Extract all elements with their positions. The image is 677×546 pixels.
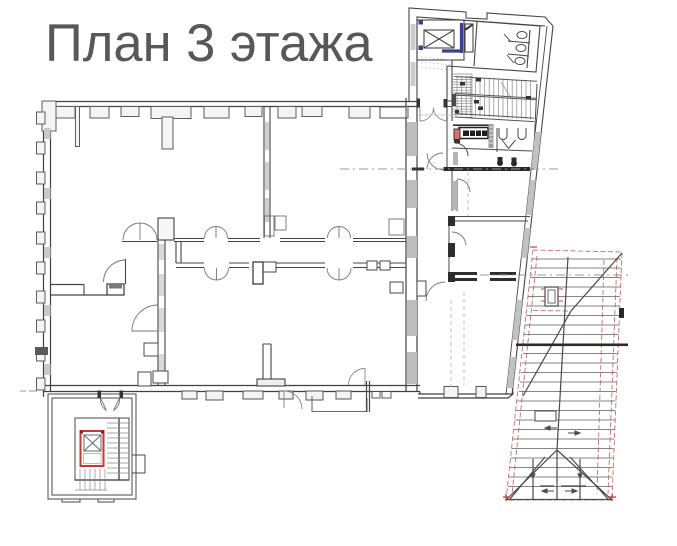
svg-text:План 3 этажа: План 3 этажа	[45, 14, 373, 73]
